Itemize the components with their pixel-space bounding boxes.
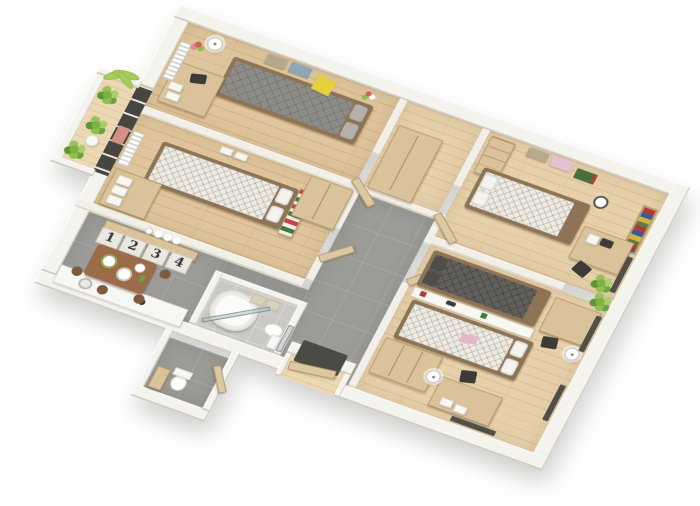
- office-chair: [459, 370, 477, 384]
- floor-plan-stage: 1 2 3 4: [0, 0, 700, 506]
- office-chair: [540, 336, 559, 350]
- laptop: [189, 73, 207, 84]
- apartment-plan: 1 2 3 4: [0, 0, 700, 506]
